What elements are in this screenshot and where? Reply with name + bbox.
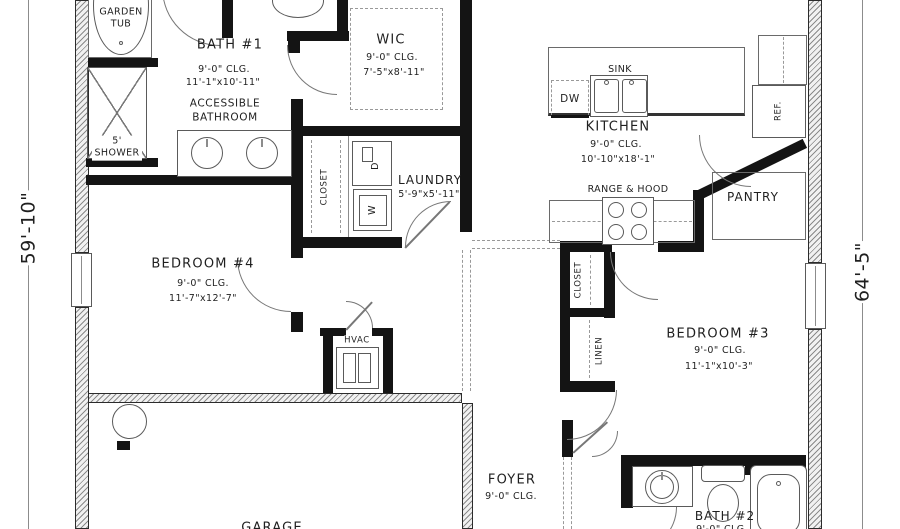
hall-closet-label: CLOSET [319, 169, 330, 206]
hall-dashed-line [472, 248, 560, 249]
hall-dashed-line [472, 240, 560, 241]
bedroom4-label: BEDROOM #4 [151, 257, 254, 274]
burner [631, 224, 647, 240]
garage-opening-dashed [571, 457, 572, 529]
floor-plan: 59'-10" 64'-5" [0, 0, 900, 529]
garage-label: GARAGE [241, 521, 303, 529]
linen-shelf-dashed [589, 320, 590, 378]
faucet [604, 80, 609, 85]
washer-label: W [367, 205, 379, 215]
hall-dashed-line [470, 250, 471, 391]
bedroom3-size: 11'-1"x10'-3" [685, 361, 753, 373]
toilet [272, 0, 324, 18]
bath2-label: BATH #2 [695, 509, 755, 525]
dryer-label: D [370, 162, 382, 170]
wall-stub [117, 441, 130, 450]
kitchen-label: KITCHEN [586, 120, 651, 137]
faucet [261, 139, 263, 147]
wall [291, 312, 303, 332]
dryer-detail [362, 147, 373, 162]
door-arc [633, 507, 677, 529]
pantry-outline [712, 172, 806, 240]
hvac-label: HVAC [344, 335, 370, 346]
bath1-label: BATH #1 [197, 38, 263, 55]
wall [302, 237, 402, 248]
kitchen-size: 10'-10"x18'-1" [581, 154, 655, 166]
door-arc [610, 252, 658, 300]
range-label: RANGE & HOOD [588, 184, 669, 196]
dimension-right: 64'-5" [848, 241, 879, 303]
door-arc [287, 45, 337, 95]
faucet [206, 139, 208, 147]
exterior-wall-right [808, 329, 822, 529]
pantry-label: PANTRY [727, 190, 779, 206]
bedroom3-closet-label: CLOSET [573, 262, 584, 299]
dimension-left: 59'-10" [14, 191, 45, 266]
exterior-wall-left [75, 307, 89, 529]
wic-ceiling: 9'-0" CLG. [366, 52, 418, 64]
wall [560, 308, 615, 317]
kitchen-ceiling: 9'-0" CLG. [590, 139, 642, 151]
sink-label: SINK [608, 64, 632, 76]
bath2-ceiling: 9'-0" CLG. [696, 524, 748, 529]
exterior-wall-right [808, 0, 822, 263]
cabinet-dashed [783, 37, 784, 83]
wall [302, 126, 472, 136]
wall [372, 328, 393, 336]
garage-top-wall [88, 393, 462, 403]
burner [608, 224, 624, 240]
sink-basin [622, 79, 647, 113]
foyer-label: FOYER [488, 473, 536, 490]
refrigerator-label: REF. [773, 101, 784, 121]
door-arc [592, 431, 618, 457]
faucet [661, 472, 663, 480]
closet-rod-dashed [311, 140, 312, 233]
laundry-size: 5'-9"x5'-11" [398, 189, 459, 201]
bedroom4-ceiling: 9'-0" CLG. [177, 278, 229, 290]
wall [88, 58, 158, 67]
tub-drain [119, 41, 123, 45]
bath1-ceiling: 9'-0" CLG. [198, 64, 250, 76]
burner [631, 202, 647, 218]
dishwasher-label: DW [560, 93, 580, 107]
garage-right-wall [462, 403, 473, 529]
wall [320, 328, 346, 336]
wall [323, 330, 333, 393]
foyer-ceiling: 9'-0" CLG. [485, 491, 537, 503]
bedroom4-size: 11'-7"x12'-7" [169, 293, 237, 305]
window-glass-line [81, 256, 82, 304]
closet-rod-dashed [590, 255, 591, 305]
wic-size: 7'-5"x8'-11" [363, 67, 424, 79]
wall [337, 0, 348, 41]
burner [608, 202, 624, 218]
bath1-note: ACCESSIBLE BATHROOM [178, 97, 272, 124]
toilet-tank [701, 465, 745, 482]
hvac-unit-detail [358, 353, 371, 383]
wall [383, 330, 393, 393]
faucet [629, 80, 634, 85]
bath1-size: 11'-1"x10'-11" [186, 77, 260, 89]
window-glass-line [815, 266, 816, 326]
garden-tub-label: GARDEN TUB [94, 7, 148, 32]
wall [560, 252, 570, 392]
closet-rod-dashed [340, 140, 341, 233]
wall [222, 0, 233, 38]
linen-label: LINEN [594, 337, 605, 365]
wic-label: WIC [376, 33, 405, 50]
hvac-unit-detail [343, 353, 356, 383]
hall-dashed-line [462, 250, 463, 391]
dishwasher-front [551, 115, 589, 118]
water-heater [112, 404, 147, 439]
garage-opening-dashed [563, 457, 564, 529]
closet-divider [348, 136, 349, 237]
shower-label: 5' SHOWER [92, 136, 142, 161]
wall [460, 0, 472, 232]
laundry-label: LAUNDRY [398, 173, 462, 189]
bedroom3-ceiling: 9'-0" CLG. [694, 345, 746, 357]
wall [291, 99, 303, 258]
bedroom3-label: BEDROOM #3 [666, 327, 769, 344]
tub-faucet [776, 481, 781, 486]
